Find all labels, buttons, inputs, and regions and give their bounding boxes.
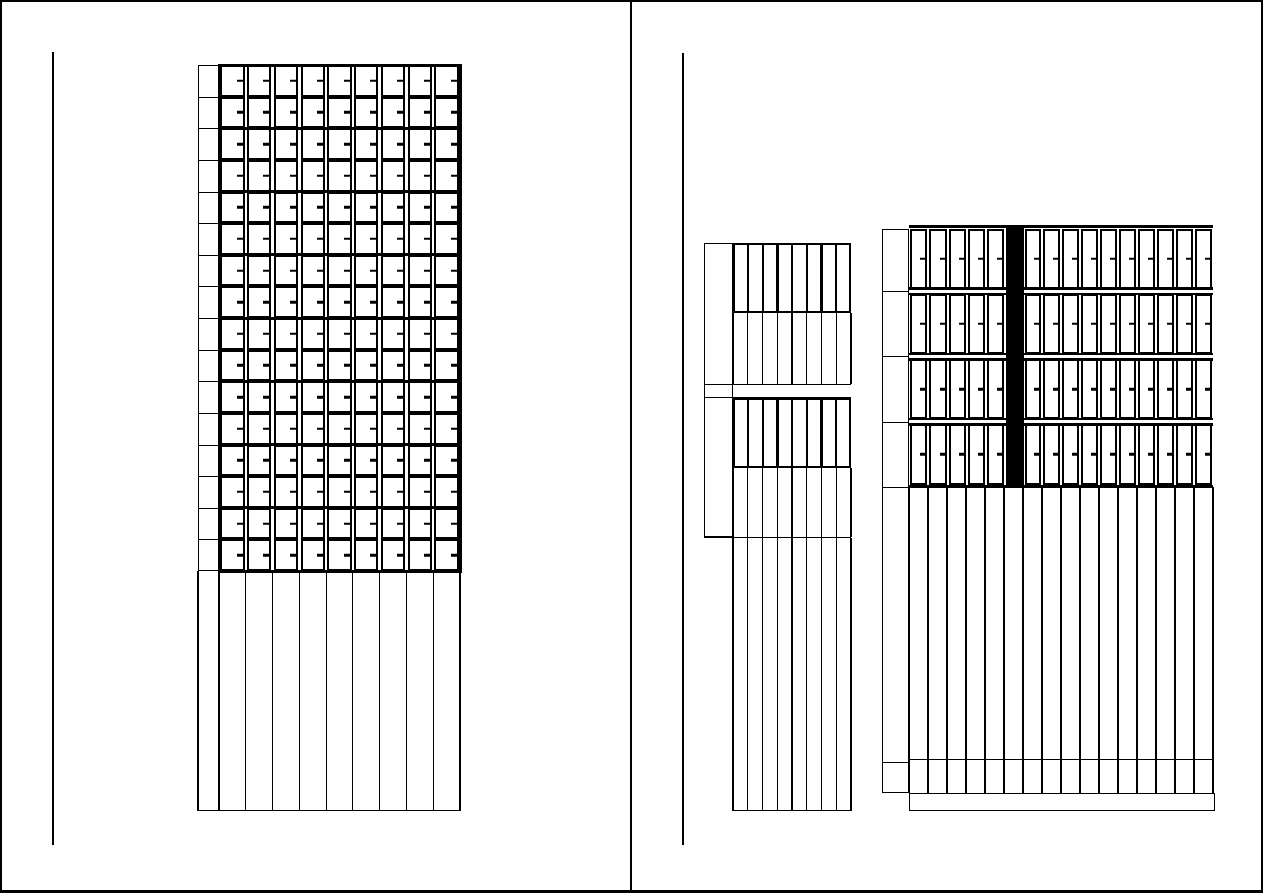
label-tick (344, 364, 350, 367)
drawer-front (247, 65, 271, 97)
book-spine (1176, 424, 1193, 484)
label-tick (317, 522, 323, 525)
shelf-top-edge (909, 225, 1213, 228)
drawer-front (301, 445, 325, 477)
book-spine (1138, 294, 1155, 354)
drawer-front (408, 445, 432, 477)
label-tick (370, 206, 376, 209)
label-tick (1186, 453, 1191, 456)
slot-divider (850, 538, 851, 811)
label-tick (451, 427, 457, 430)
label-tick (237, 238, 243, 241)
label-tick (424, 206, 430, 209)
label-tick (290, 206, 296, 209)
label-tick (1148, 388, 1153, 391)
label-tick (451, 143, 457, 146)
drawer-front (354, 128, 378, 160)
slot-divider (777, 468, 778, 537)
drawer-front (220, 192, 244, 224)
book-spine (1176, 294, 1193, 354)
label-tick (370, 301, 376, 304)
label-tick (290, 301, 296, 304)
side-panel-joint (882, 356, 909, 357)
label-tick (920, 388, 925, 391)
label-tick (370, 364, 376, 367)
label-tick (1167, 323, 1172, 326)
open-column-divider (1098, 487, 1099, 759)
label-tick (290, 522, 296, 525)
drawer-front (408, 476, 432, 508)
label-tick (290, 427, 296, 430)
book-spine (1081, 294, 1098, 354)
label-tick (997, 388, 1002, 391)
book-spine (1025, 424, 1042, 484)
book-spine (1119, 359, 1136, 419)
drawer-front (354, 350, 378, 382)
label-tick (370, 111, 376, 114)
side-panel-joint (198, 255, 219, 256)
label-tick (1186, 388, 1191, 391)
drawer-front (274, 286, 298, 318)
drawer-front (301, 350, 325, 382)
label-tick (263, 459, 269, 462)
label-tick (1053, 453, 1058, 456)
label-tick (290, 269, 296, 272)
label-tick (317, 269, 323, 272)
drawer-front (434, 286, 458, 318)
label-tick (451, 459, 457, 462)
label-tick (424, 396, 430, 399)
drawer-front (408, 350, 432, 382)
label-tick (237, 206, 243, 209)
label-tick (1034, 388, 1039, 391)
label-tick (290, 174, 296, 177)
drawer-front (301, 476, 325, 508)
slot-divider (747, 468, 748, 537)
label-tick (317, 491, 323, 494)
book-spine (910, 359, 927, 419)
drawer-front (247, 97, 271, 129)
side-panel-joint (198, 318, 219, 319)
drawer-front (354, 65, 378, 97)
label-tick (344, 427, 350, 430)
open-column-divider (908, 487, 909, 759)
open-column-divider (927, 487, 928, 759)
label-tick (317, 427, 323, 430)
book-divider (776, 243, 779, 313)
label-tick (317, 333, 323, 336)
label-tick (237, 174, 243, 177)
drawer-front (301, 539, 325, 571)
label-tick (978, 257, 983, 260)
bottom-row-divider (965, 759, 966, 793)
label-tick (1205, 388, 1210, 391)
page-divider (630, 2, 632, 890)
label-tick (263, 364, 269, 367)
drawer-front (247, 318, 271, 350)
bottom-row-divider (1136, 759, 1137, 793)
label-tick (1148, 323, 1153, 326)
drawer-front (327, 318, 351, 350)
label-tick (317, 111, 323, 114)
label-tick (1167, 388, 1172, 391)
book-spine (1043, 424, 1060, 484)
drawer-front (274, 318, 298, 350)
book-divider (806, 398, 808, 468)
book-spine (1062, 424, 1079, 484)
label-tick (1110, 388, 1115, 391)
slot-divider (850, 468, 851, 537)
label-tick (370, 143, 376, 146)
open-column-divider (1174, 487, 1175, 759)
drawer-front (274, 413, 298, 445)
label-tick (1167, 453, 1172, 456)
drawer-front (301, 381, 325, 413)
book-spine (1081, 229, 1098, 289)
label-tick (237, 269, 243, 272)
margin-line-left (52, 52, 54, 845)
drawer-front (247, 223, 271, 255)
label-tick (920, 323, 925, 326)
drawer-front (247, 381, 271, 413)
bottom-row-divider (1212, 759, 1213, 793)
label-tick (370, 427, 376, 430)
label-tick (451, 206, 457, 209)
drawer-front (327, 160, 351, 192)
label-tick (237, 459, 243, 462)
label-tick (263, 301, 269, 304)
drawer-front (327, 286, 351, 318)
label-tick (451, 491, 457, 494)
label-tick (1110, 323, 1115, 326)
drawer-front (220, 539, 244, 571)
label-tick (344, 174, 350, 177)
bottom-row-divider (1155, 759, 1156, 793)
label-tick (397, 174, 403, 177)
drawer-front (434, 97, 458, 129)
label-tick (290, 396, 296, 399)
drawing-layer (0, 0, 1263, 893)
open-column-divider (1003, 487, 1004, 759)
label-tick (997, 323, 1002, 326)
drawer-front (247, 286, 271, 318)
book-spine (1195, 359, 1212, 419)
drawer-front (381, 445, 405, 477)
drawer-front (274, 160, 298, 192)
drawer-front (301, 413, 325, 445)
drawer-front (220, 413, 244, 445)
drawer-front (381, 539, 405, 571)
label-tick (1110, 453, 1115, 456)
drawer-front (247, 128, 271, 160)
bottom-row-divider (1193, 759, 1194, 793)
label-tick (344, 269, 350, 272)
shelf-mid-line (704, 537, 851, 538)
label-tick (1091, 257, 1096, 260)
book-spine (987, 229, 1004, 289)
drawer-front (247, 255, 271, 287)
book-spine (929, 294, 946, 354)
side-panel-joint (198, 476, 219, 477)
drawer-front (247, 539, 271, 571)
drawer-front (301, 97, 325, 129)
label-tick (424, 333, 430, 336)
side-panel-joint (198, 160, 219, 161)
drawer-front (220, 445, 244, 477)
label-tick (237, 396, 243, 399)
drawer-front (408, 255, 432, 287)
label-tick (940, 257, 945, 260)
label-tick (451, 554, 457, 557)
drawer-front (408, 539, 432, 571)
label-tick (397, 206, 403, 209)
drawer-front (220, 318, 244, 350)
slot-divider (821, 468, 822, 537)
label-tick (344, 459, 350, 462)
slot-divider (762, 468, 763, 537)
slot-divider (762, 313, 763, 384)
label-tick (451, 301, 457, 304)
book-spine (968, 229, 985, 289)
book-spine (929, 359, 946, 419)
side-panel-joint (198, 286, 219, 287)
cabinet-edge-left (218, 65, 221, 571)
drawer-front (327, 539, 351, 571)
slot-divider (732, 313, 733, 384)
drawer-front (434, 350, 458, 382)
label-tick (1129, 453, 1134, 456)
label-tick (317, 364, 323, 367)
drawer-front (301, 160, 325, 192)
drawer-front (354, 255, 378, 287)
label-tick (959, 323, 964, 326)
shelf-line (218, 506, 462, 509)
drawer-front (274, 476, 298, 508)
bottom-row-divider (927, 759, 928, 793)
slot-divider (732, 468, 733, 537)
drawer-front (301, 128, 325, 160)
label-tick (397, 333, 403, 336)
slot-divider (762, 538, 763, 811)
book-spine (1081, 424, 1098, 484)
bottom-row-divider (946, 759, 947, 793)
label-tick (290, 80, 296, 83)
drawer-front (220, 97, 244, 129)
label-tick (424, 522, 430, 525)
drawer-front (354, 508, 378, 540)
side-panel-joint (198, 413, 219, 414)
slot-divider (850, 313, 851, 384)
slot-divider (732, 538, 733, 811)
drawer-front (381, 192, 405, 224)
drawer-front (381, 223, 405, 255)
side-panel-joint (198, 381, 219, 382)
drawer-front (434, 128, 458, 160)
shelf-side-panel-large (882, 229, 909, 793)
label-tick (263, 333, 269, 336)
bottom-row-divider (1117, 759, 1118, 793)
drawer-front (381, 286, 405, 318)
drawer-front (408, 160, 432, 192)
book-spine (1100, 229, 1117, 289)
drawer-front (354, 413, 378, 445)
label-tick (397, 427, 403, 430)
drawer-front (434, 192, 458, 224)
book-spine (910, 294, 927, 354)
label-tick (1072, 453, 1077, 456)
shelf-line (218, 443, 462, 446)
label-tick (317, 396, 323, 399)
side-panel-joint (198, 192, 219, 193)
drawer-front (327, 350, 351, 382)
drawer-front (381, 381, 405, 413)
label-tick (997, 453, 1002, 456)
drawer-front (354, 97, 378, 129)
side-panel-joint (198, 128, 219, 129)
book-spine (1081, 359, 1098, 419)
label-tick (451, 174, 457, 177)
book-spine (1100, 359, 1117, 419)
slot-divider (747, 538, 748, 811)
open-column-divider (1022, 487, 1023, 759)
drawer-front (408, 192, 432, 224)
drawer-front (274, 539, 298, 571)
label-tick (959, 388, 964, 391)
shelf-line (218, 64, 462, 67)
label-tick (370, 491, 376, 494)
drawer-front (381, 476, 405, 508)
drawer-front (434, 65, 458, 97)
open-column-divider (1117, 487, 1118, 759)
label-tick (263, 554, 269, 557)
label-tick (263, 238, 269, 241)
label-tick (451, 364, 457, 367)
drawer-front (381, 413, 405, 445)
label-tick (237, 491, 243, 494)
drawer-front (434, 160, 458, 192)
bottom-row-divider (1060, 759, 1061, 793)
drawer-front (381, 97, 405, 129)
drawer-front (354, 318, 378, 350)
drawer-front (247, 350, 271, 382)
book-spine (1157, 294, 1174, 354)
shelf-band-top (704, 384, 851, 385)
book-spine (1195, 229, 1212, 289)
drawer-front (381, 65, 405, 97)
drawer-front (301, 318, 325, 350)
drawer-front (327, 65, 351, 97)
label-tick (263, 206, 269, 209)
book-spine (1119, 294, 1136, 354)
label-tick (290, 459, 296, 462)
side-panel-joint (198, 539, 219, 540)
base-column-divider (459, 571, 460, 811)
label-tick (940, 388, 945, 391)
label-tick (1186, 257, 1191, 260)
label-tick (290, 491, 296, 494)
book-spine (910, 424, 927, 484)
label-tick (370, 174, 376, 177)
book-spine (968, 294, 985, 354)
book-divider (820, 398, 823, 468)
label-tick (237, 143, 243, 146)
book-spine (1138, 359, 1155, 419)
drawer-front (327, 413, 351, 445)
slot-divider (777, 538, 778, 811)
label-tick (263, 174, 269, 177)
label-tick (237, 301, 243, 304)
book-divider (791, 398, 793, 468)
label-tick (1034, 323, 1039, 326)
book-spine (1195, 424, 1212, 484)
drawer-front (327, 255, 351, 287)
base-column-divider (245, 571, 246, 811)
shelf-bottom-edge (733, 810, 851, 811)
open-column-divider (1212, 487, 1213, 759)
drawer-front (220, 508, 244, 540)
book-spine (1100, 294, 1117, 354)
label-tick (1205, 257, 1210, 260)
book-spine (1062, 359, 1079, 419)
label-tick (1129, 388, 1134, 391)
shelf-line (218, 380, 462, 383)
drawer-front (301, 286, 325, 318)
label-tick (317, 206, 323, 209)
book-spine (987, 294, 1004, 354)
label-tick (344, 491, 350, 494)
book-spine (1138, 424, 1155, 484)
open-column-divider (946, 487, 947, 759)
drawer-front (434, 381, 458, 413)
book-spine (1062, 294, 1079, 354)
book-spine (1062, 229, 1079, 289)
drawer-front (274, 223, 298, 255)
side-panel-joint (882, 422, 909, 423)
drawer-front (220, 128, 244, 160)
side-panel-joint (198, 97, 219, 98)
base-column-divider (326, 571, 327, 811)
label-tick (424, 364, 430, 367)
base-column-divider (299, 571, 300, 811)
book-spine (1100, 424, 1117, 484)
drawer-front (434, 413, 458, 445)
drawer-front (354, 381, 378, 413)
book-divider (835, 243, 837, 313)
label-tick (978, 388, 983, 391)
book-spine (929, 424, 946, 484)
open-column-divider (1041, 487, 1042, 759)
label-tick (1072, 257, 1077, 260)
drawer-front (354, 286, 378, 318)
book-spine (987, 359, 1004, 419)
label-tick (1205, 453, 1210, 456)
label-tick (959, 257, 964, 260)
label-tick (1205, 323, 1210, 326)
filled-binder-band (1006, 226, 1024, 487)
label-tick (344, 554, 350, 557)
drawer-front (274, 128, 298, 160)
label-tick (237, 111, 243, 114)
slot-divider (791, 538, 792, 811)
drawer-front (274, 192, 298, 224)
label-tick (290, 554, 296, 557)
label-tick (237, 554, 243, 557)
book-spine (1119, 424, 1136, 484)
base-column-divider (218, 571, 219, 811)
slot-divider (791, 468, 792, 537)
label-tick (397, 143, 403, 146)
label-tick (424, 269, 430, 272)
